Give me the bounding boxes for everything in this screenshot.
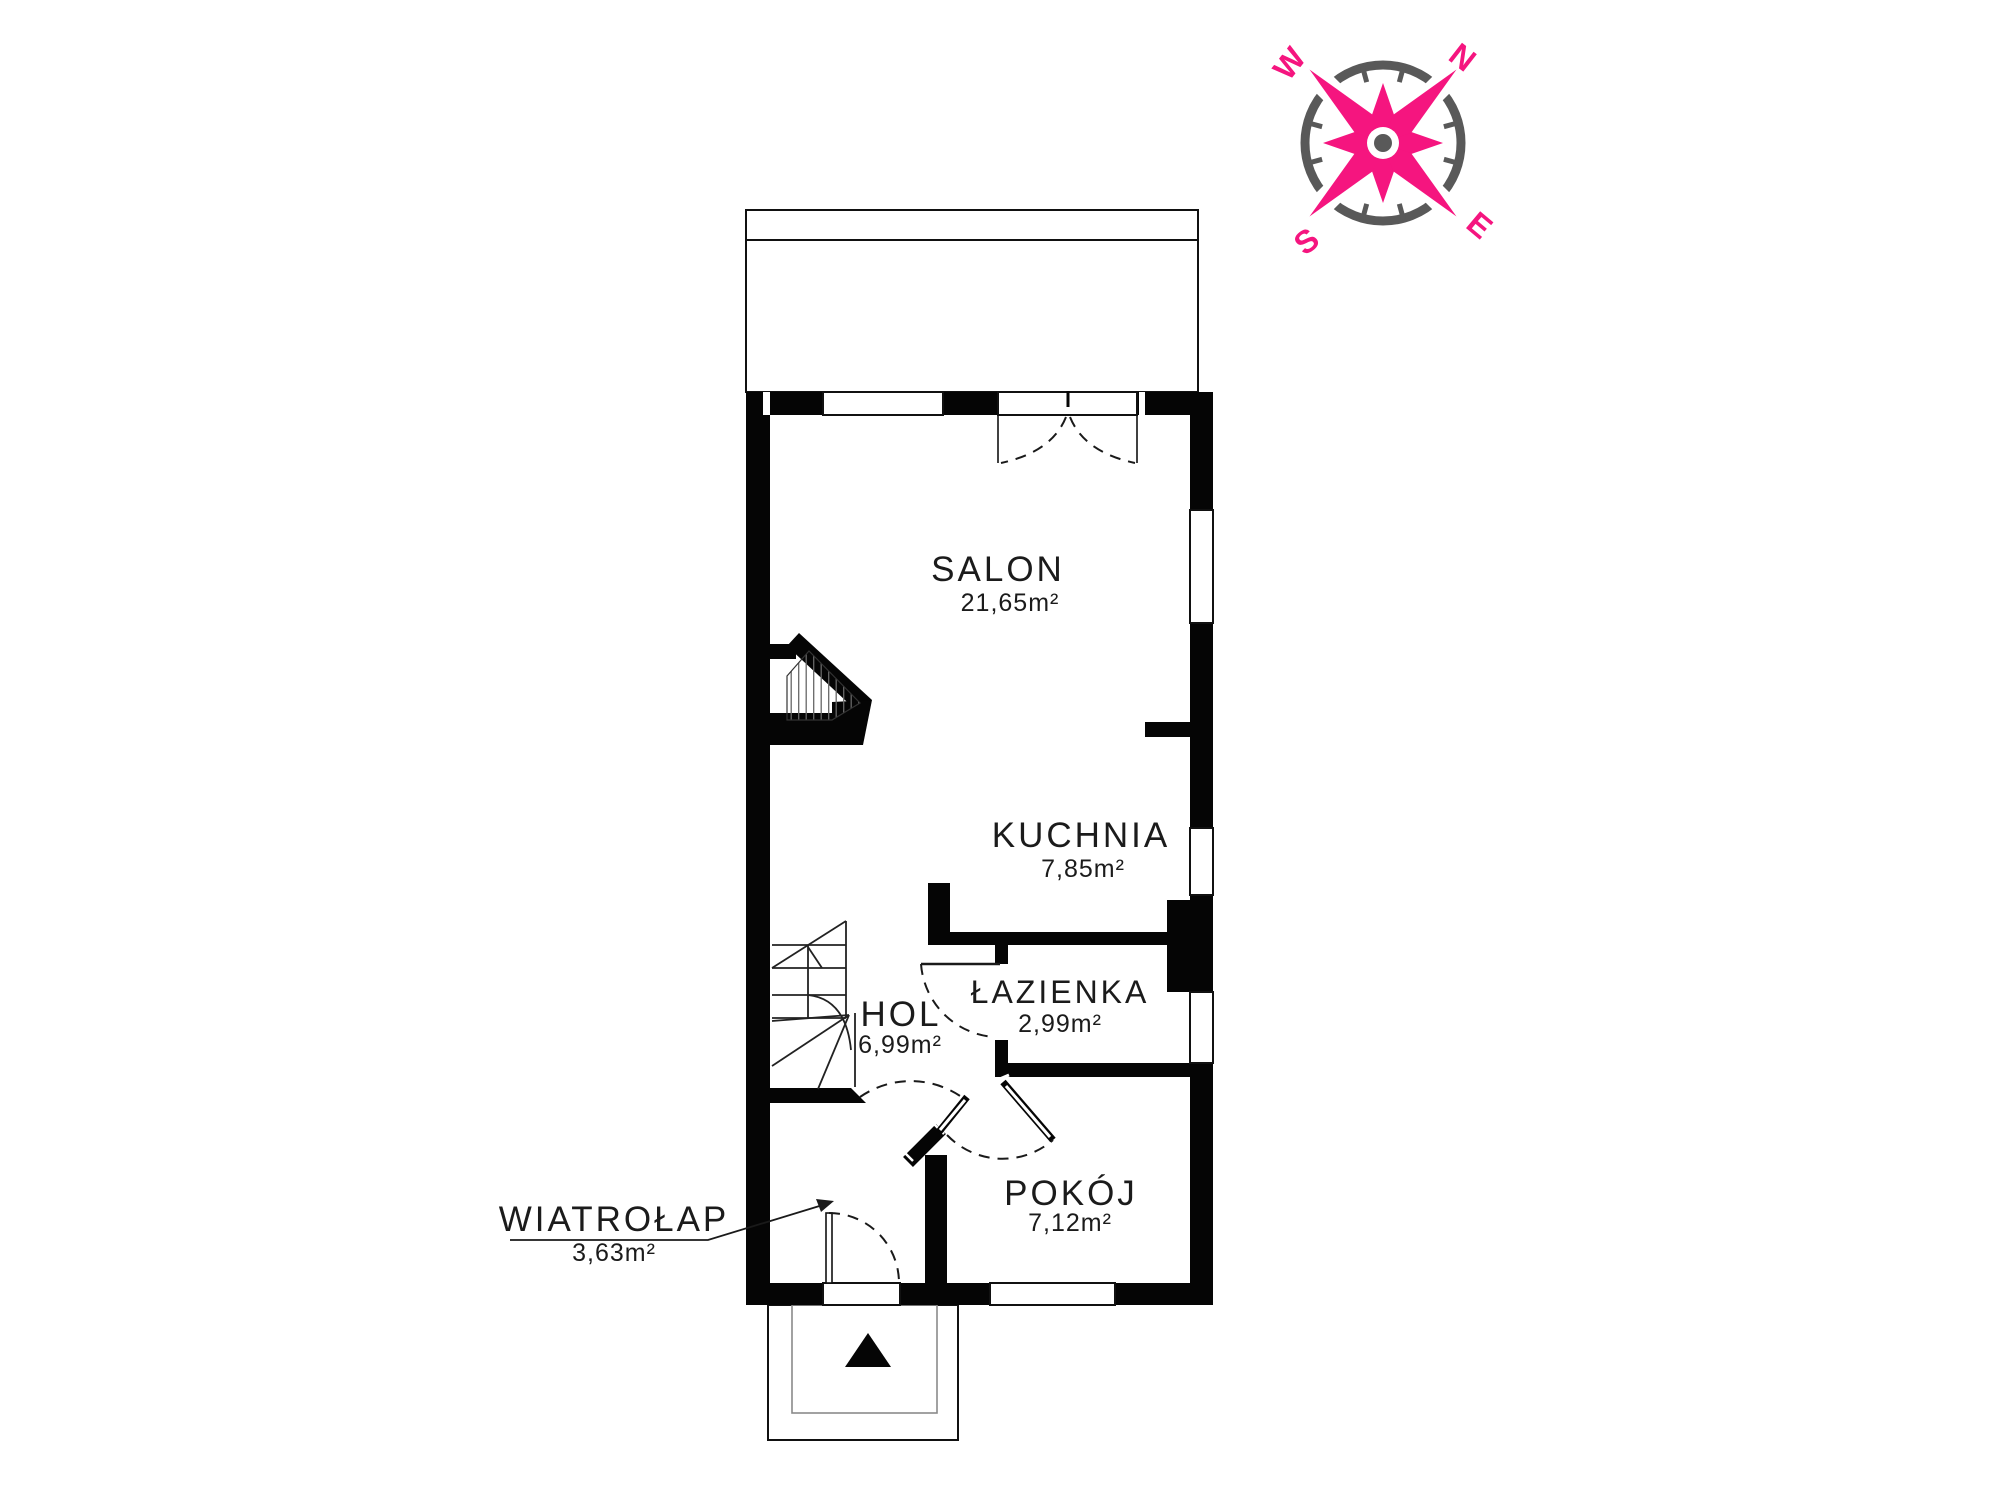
room-label-lazienka: ŁAZIENKA: [971, 974, 1150, 1010]
room-label-hol: HOL: [861, 995, 942, 1034]
window-pokoj: [990, 1283, 1115, 1305]
room-area-hol: 6,99m²: [858, 1031, 942, 1059]
window-bathroom: [1190, 992, 1213, 1063]
room-label-salon: SALON: [931, 550, 1065, 589]
chimney: [768, 633, 872, 745]
room-label-kuchnia: KUCHNIA: [992, 816, 1171, 855]
window-salon-top: [823, 392, 943, 415]
compass-letter-e: E: [1460, 205, 1499, 246]
french-door-terrace: [998, 391, 1137, 463]
room-labels: SALON 21,65m² KUCHNIA 7,85m² ŁAZIENKA 2,…: [499, 550, 1171, 1267]
room-area-salon: 21,65m²: [961, 589, 1060, 617]
entrance-arrow-icon: [816, 1199, 834, 1212]
room-label-wiatrolap: WIATROŁAP: [499, 1200, 730, 1239]
window-salon-right: [1190, 510, 1213, 623]
front-door: [823, 1213, 900, 1305]
terrace: [746, 210, 1198, 392]
entry-porch: [768, 1305, 958, 1440]
floor-plan: SALON 21,65m² KUCHNIA 7,85m² ŁAZIENKA 2,…: [0, 0, 2000, 1500]
room-area-wiatrolap: 3,63m²: [572, 1239, 656, 1267]
window-kitchen: [1190, 828, 1213, 895]
entrance-marker-triangle: [845, 1333, 891, 1367]
room-label-pokoj: POKÓJ: [1004, 1174, 1138, 1213]
wiatrolap-door: [860, 1081, 967, 1133]
compass-letter-s: S: [1287, 220, 1326, 262]
pokoj-door: [947, 1075, 1053, 1159]
staircase: [772, 921, 855, 1089]
compass-hub-dot: [1374, 134, 1392, 152]
room-area-lazienka: 2,99m²: [1018, 1010, 1102, 1038]
floor-plan-page: SALON 21,65m² KUCHNIA 7,85m² ŁAZIENKA 2,…: [0, 0, 2000, 1500]
compass-rose: N E S W: [1266, 36, 1500, 262]
room-area-pokoj: 7,12m²: [1028, 1209, 1112, 1237]
room-area-kuchnia: 7,85m²: [1041, 855, 1125, 883]
